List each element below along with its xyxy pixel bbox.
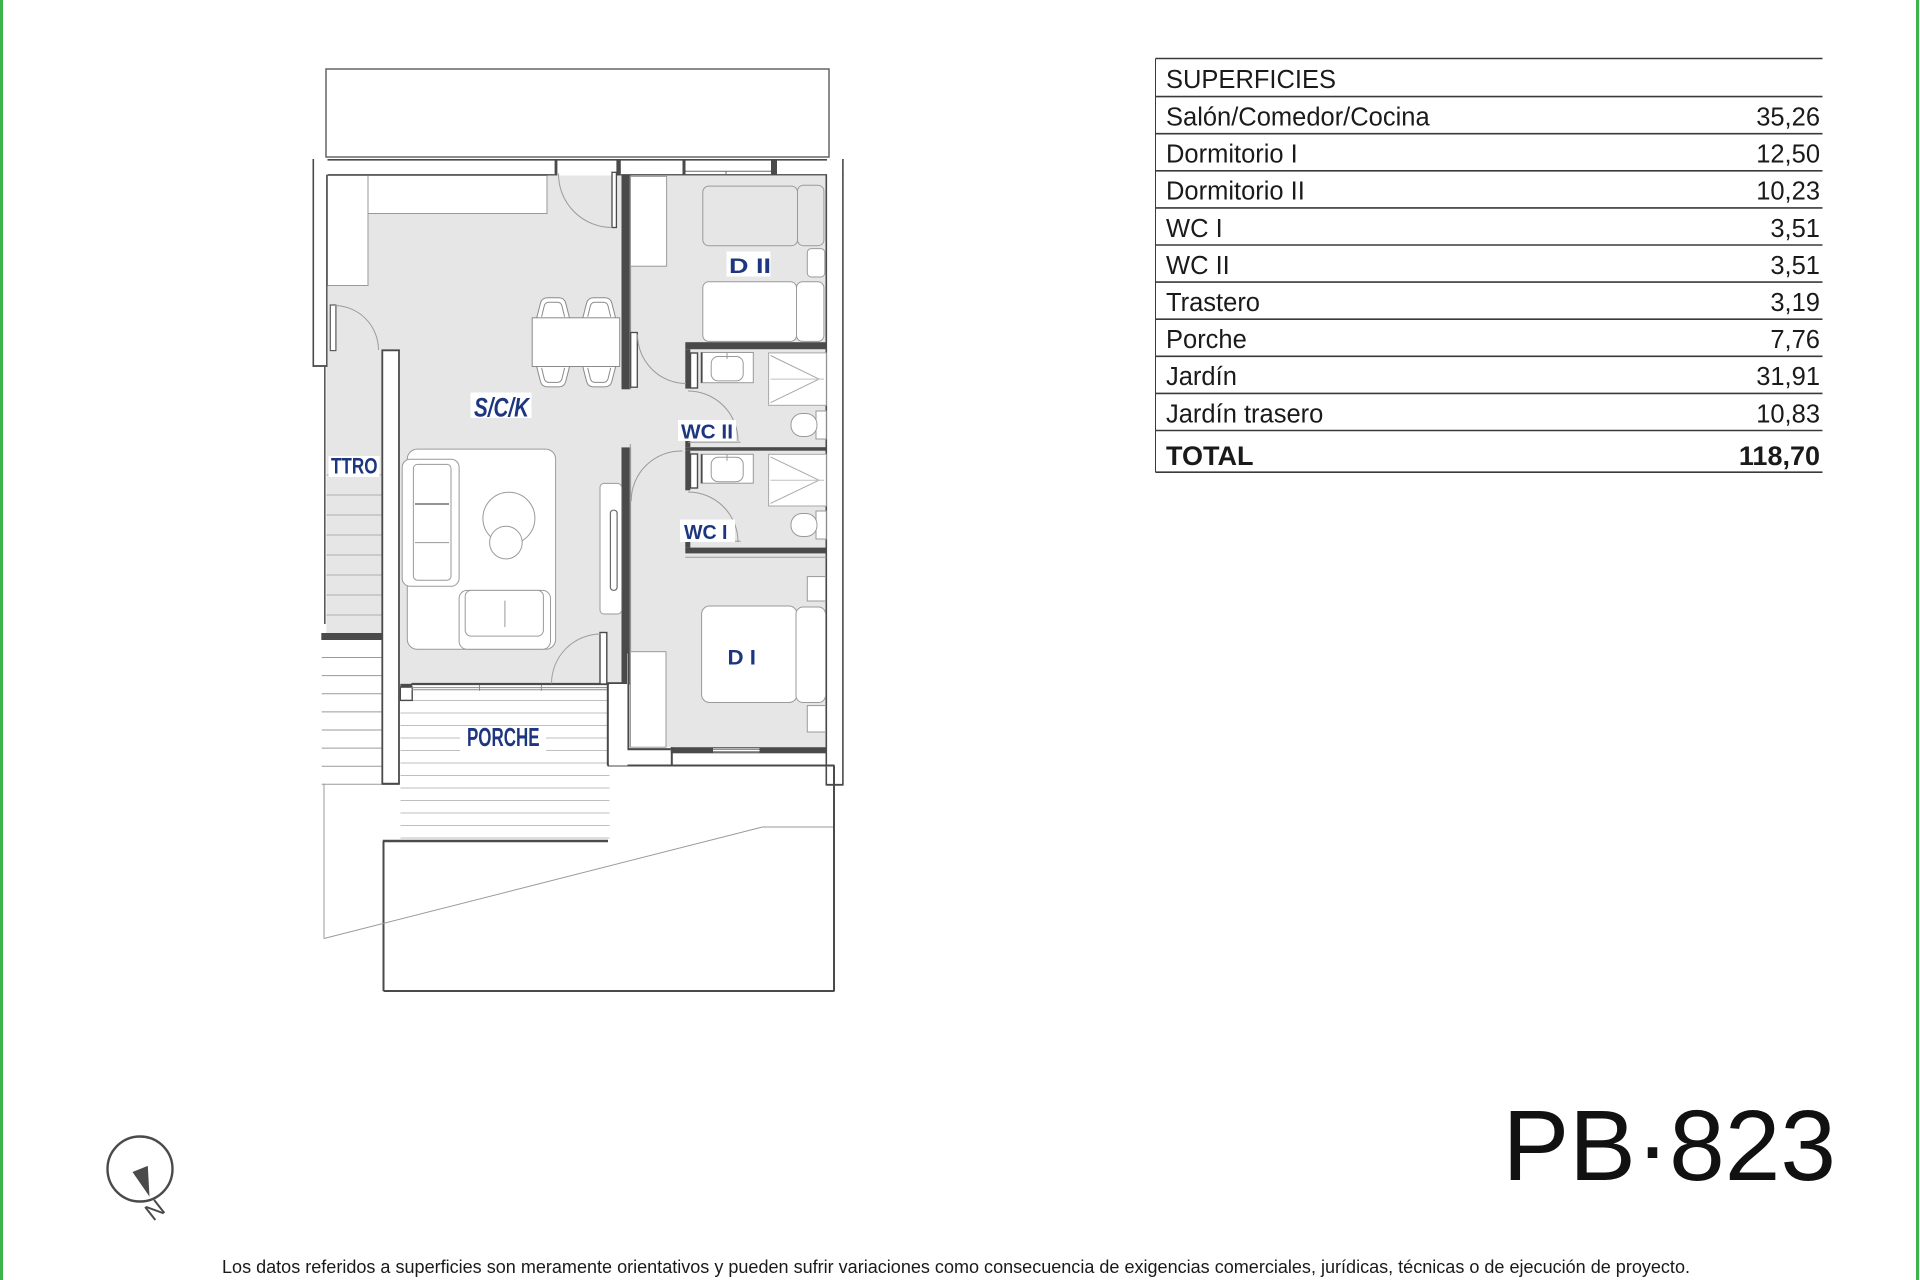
svg-text:3,51: 3,51 xyxy=(1770,252,1820,280)
svg-text:35,26: 35,26 xyxy=(1756,104,1820,132)
svg-text:Los datos referidos a superfic: Los datos referidos a superficies son me… xyxy=(222,1256,1690,1277)
svg-text:3,19: 3,19 xyxy=(1770,289,1820,317)
svg-text:S/C/K: S/C/K xyxy=(474,393,531,423)
svg-text:Salón/Comedor/Cocina: Salón/Comedor/Cocina xyxy=(1166,104,1430,132)
svg-text:31,91: 31,91 xyxy=(1756,363,1820,391)
svg-text:SUPERFICIES: SUPERFICIES xyxy=(1166,66,1336,94)
svg-text:WC I: WC I xyxy=(684,521,728,544)
svg-text:D II: D II xyxy=(729,254,771,278)
svg-text:12,50: 12,50 xyxy=(1756,141,1820,169)
svg-text:Dormitorio I: Dormitorio I xyxy=(1166,141,1298,169)
svg-text:Trastero: Trastero xyxy=(1166,289,1260,317)
svg-text:Jardín: Jardín xyxy=(1166,363,1237,391)
svg-text:WC I: WC I xyxy=(1166,215,1223,243)
svg-text:Jardín trasero: Jardín trasero xyxy=(1166,400,1323,428)
svg-text:TOTAL: TOTAL xyxy=(1166,441,1254,471)
svg-text:PORCHE: PORCHE xyxy=(467,722,540,752)
svg-text:10,83: 10,83 xyxy=(1756,400,1820,428)
svg-text:10,23: 10,23 xyxy=(1756,178,1820,206)
svg-text:WC II: WC II xyxy=(1166,252,1230,280)
svg-text:WC II: WC II xyxy=(681,421,733,444)
svg-text:3,51: 3,51 xyxy=(1770,215,1820,243)
svg-text:Porche: Porche xyxy=(1166,326,1247,354)
svg-text:118,70: 118,70 xyxy=(1739,441,1820,471)
svg-text:TTRO: TTRO xyxy=(331,454,378,479)
svg-text:Dormitorio II: Dormitorio II xyxy=(1166,178,1305,206)
svg-text:7,76: 7,76 xyxy=(1770,326,1820,354)
svg-text:D I: D I xyxy=(728,646,757,670)
svg-text:PB·823: PB·823 xyxy=(1502,1090,1836,1202)
